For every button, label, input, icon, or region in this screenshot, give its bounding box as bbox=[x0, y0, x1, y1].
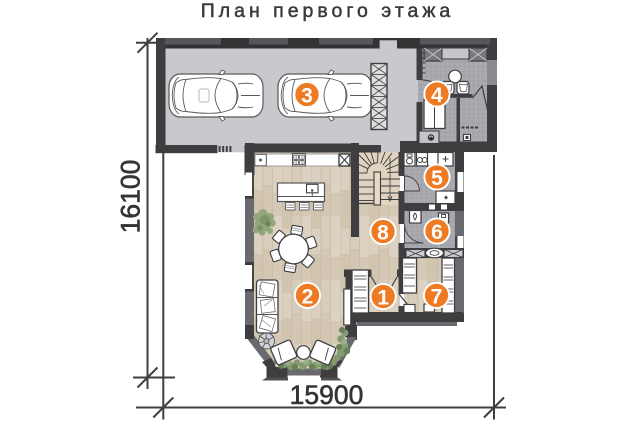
svg-text:6: 6 bbox=[431, 221, 443, 244]
svg-text:15900: 15900 bbox=[290, 380, 364, 410]
svg-text:16100: 16100 bbox=[116, 160, 146, 234]
svg-text:1: 1 bbox=[377, 287, 389, 310]
svg-text:8: 8 bbox=[377, 222, 389, 245]
svg-text:5: 5 bbox=[431, 167, 443, 190]
svg-text:3: 3 bbox=[301, 85, 313, 108]
svg-text:4: 4 bbox=[431, 84, 443, 107]
svg-text:План первого этажа: План первого этажа bbox=[201, 0, 455, 22]
svg-text:2: 2 bbox=[302, 285, 314, 308]
svg-text:7: 7 bbox=[431, 285, 443, 308]
